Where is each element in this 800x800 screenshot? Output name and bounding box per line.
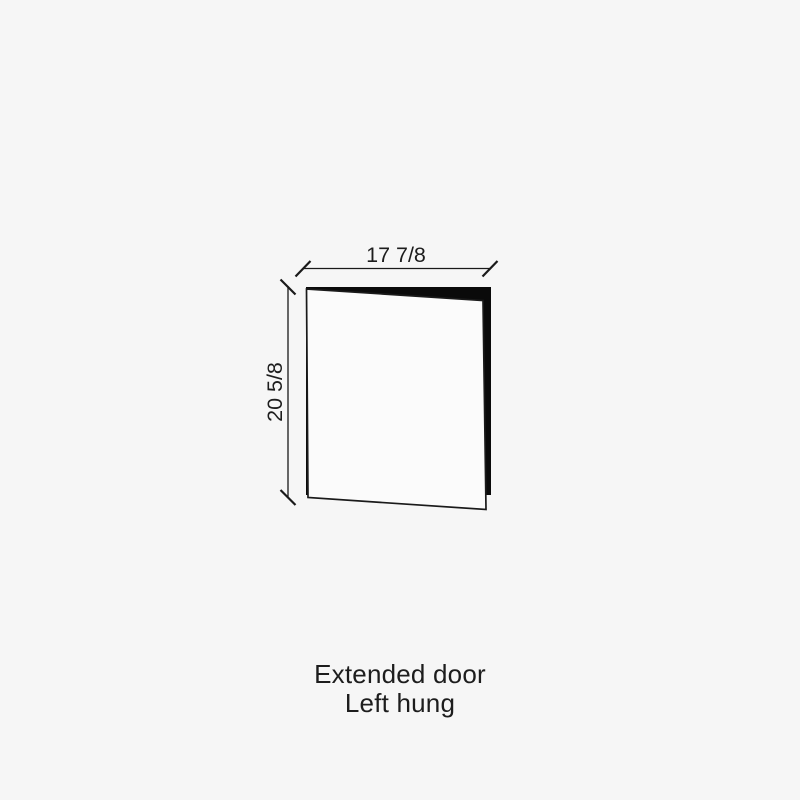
width-dimension-label: 17 7/8	[366, 243, 426, 267]
height-dimension: 20 5/8	[263, 280, 296, 506]
caption-line-1: Extended door	[0, 660, 800, 689]
caption-line-2: Left hung	[0, 689, 800, 718]
height-dimension-label: 20 5/8	[263, 362, 287, 422]
door-spec-diagram: 17 7/8 20 5/8 Extended door Left hung	[0, 0, 800, 800]
width-dimension: 17 7/8	[296, 243, 498, 277]
door-face-shape	[307, 289, 487, 510]
caption: Extended door Left hung	[0, 660, 800, 718]
